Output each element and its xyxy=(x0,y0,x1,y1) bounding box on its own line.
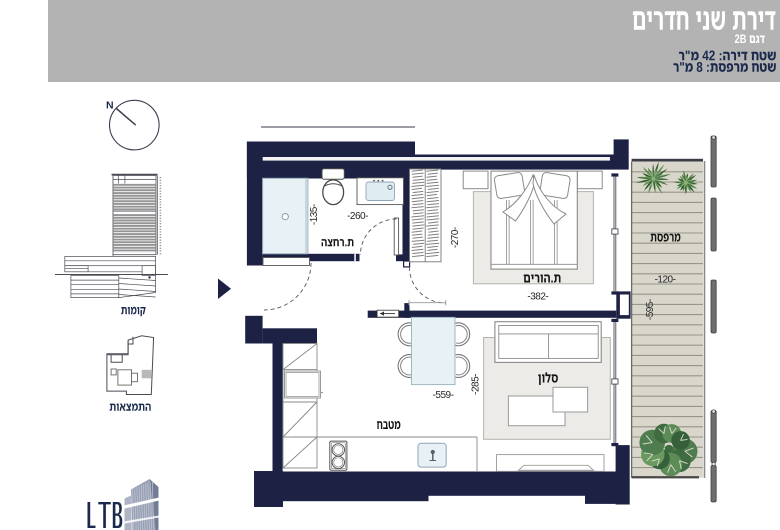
svg-text:-559-: -559- xyxy=(433,390,454,401)
svg-text:-595-: -595- xyxy=(645,299,656,320)
svg-text:-260-: -260- xyxy=(347,211,368,222)
svg-text:-135-: -135- xyxy=(309,204,320,225)
svg-text:-382-: -382- xyxy=(527,292,548,303)
svg-text:N: N xyxy=(106,100,114,112)
svg-text:-120-: -120- xyxy=(655,275,676,286)
svg-text:-270-: -270- xyxy=(450,227,461,248)
svg-text:-285-: -285- xyxy=(470,374,481,395)
